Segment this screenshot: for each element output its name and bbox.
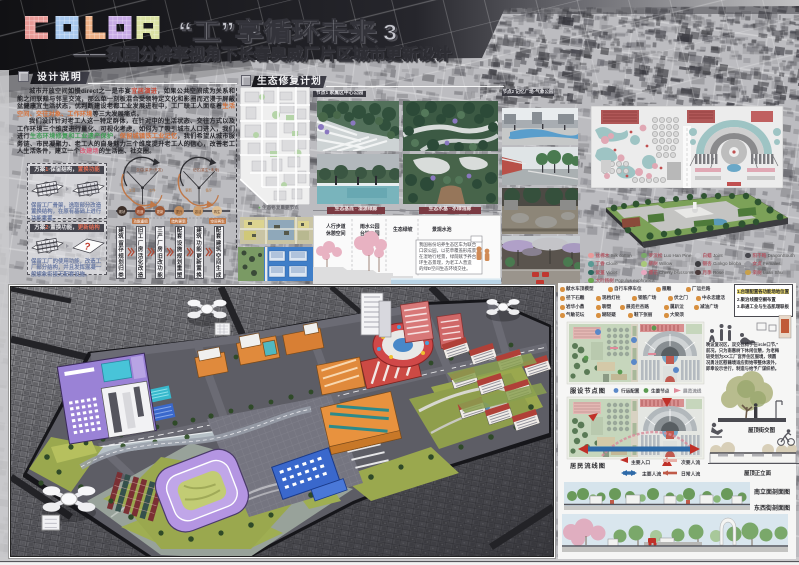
svg-text:现状: 现状: [119, 209, 126, 214]
svg-text:激活: 激活: [195, 209, 202, 214]
svg-text:结构更新: 结构更新: [171, 219, 186, 224]
svg-text:即奉设示世行，制造与给予广谋织桥。: 即奉设示世行，制造与给予广谋织桥。: [706, 365, 779, 372]
svg-text:况勇注区慰藉境适应街始带整休滚外，: 况勇注区慰藉境适应街始带整休滚外，: [706, 359, 779, 366]
svg-text:居民流线图: 居民流线图: [570, 462, 606, 470]
svg-text:屋顶街交图: 屋顶街交图: [748, 426, 776, 434]
svg-text:更新: 更新: [157, 209, 164, 214]
svg-text:功能重组: 功能重组: [133, 219, 148, 224]
svg-text:南立面剖面图: 南立面剖面图: [754, 488, 790, 496]
svg-text:晚设复况区，双交往椅子在ircle口节,": 晚设复况区，双交往椅子在ircle口节,": [706, 341, 778, 348]
svg-text:日常人流: 日常人流: [681, 471, 700, 478]
svg-text:雨水公园: 雨水公园: [360, 223, 380, 230]
svg-text:东西街剖面图: 东西街剖面图: [754, 504, 790, 512]
svg-text:在湿地行经景，绿荫赋予养台: 在湿地行经景，绿荫赋予养台: [419, 253, 477, 260]
svg-text:生姜节点: 生姜节点: [651, 388, 670, 395]
svg-text:更新: 更新: [185, 187, 192, 192]
svg-text:次要人流: 次要人流: [681, 459, 700, 466]
svg-text:展览流线: 展览流线: [683, 388, 702, 395]
svg-text:生态绿坡: 生态绿坡: [393, 226, 413, 233]
svg-text:改造: 改造: [137, 209, 144, 214]
svg-text:循环: 循环: [205, 187, 212, 192]
svg-text:的绿Đ空间生态环境交往。: 的绿Đ空间生态环境交往。: [419, 265, 470, 272]
svg-text:较受划为XX工厂宫界住区服境，领圆: 较受划为XX工厂宫界住区服境，领圆: [706, 353, 777, 360]
svg-text:空间再生: 空间再生: [210, 219, 225, 224]
svg-text:工作: 工作: [149, 187, 156, 192]
svg-text:主要入口: 主要入口: [631, 459, 650, 466]
svg-text:记忆(重生+未来): 记忆(重生+未来): [193, 167, 220, 172]
svg-text:口袋公园，以花草覆盖形成景: 口袋公园，以花草覆盖形成景: [419, 247, 477, 254]
svg-text:环生态景理，为老工人营造: 环生态景理，为老工人营造: [419, 259, 472, 266]
svg-text:服设节点图: 服设节点图: [570, 387, 606, 395]
svg-text:再生: 再生: [214, 209, 221, 214]
svg-text:休憩空间: 休憩空间: [325, 230, 346, 237]
svg-text:前况，只为南惠树下休闲位憩，为老梅: 前况，只为南惠树下休闲位憩，为老梅: [706, 347, 780, 354]
svg-text:提升: 提升: [176, 209, 183, 214]
svg-text:主要人流: 主要人流: [642, 471, 661, 478]
svg-text:屋顶正立面: 屋顶正立面: [744, 469, 772, 477]
svg-text:交往(保护+开发): 交往(保护+开发): [136, 167, 163, 172]
svg-text:景观水池: 景观水池: [431, 226, 452, 233]
svg-text:人行步道: 人行步道: [326, 223, 346, 230]
svg-text:我国省份培养生态区车为联合: 我国省份培养生态区车为联合: [419, 241, 477, 248]
svg-text:行运配置: 行运配置: [620, 388, 640, 395]
svg-text:生活: 生活: [129, 187, 136, 192]
